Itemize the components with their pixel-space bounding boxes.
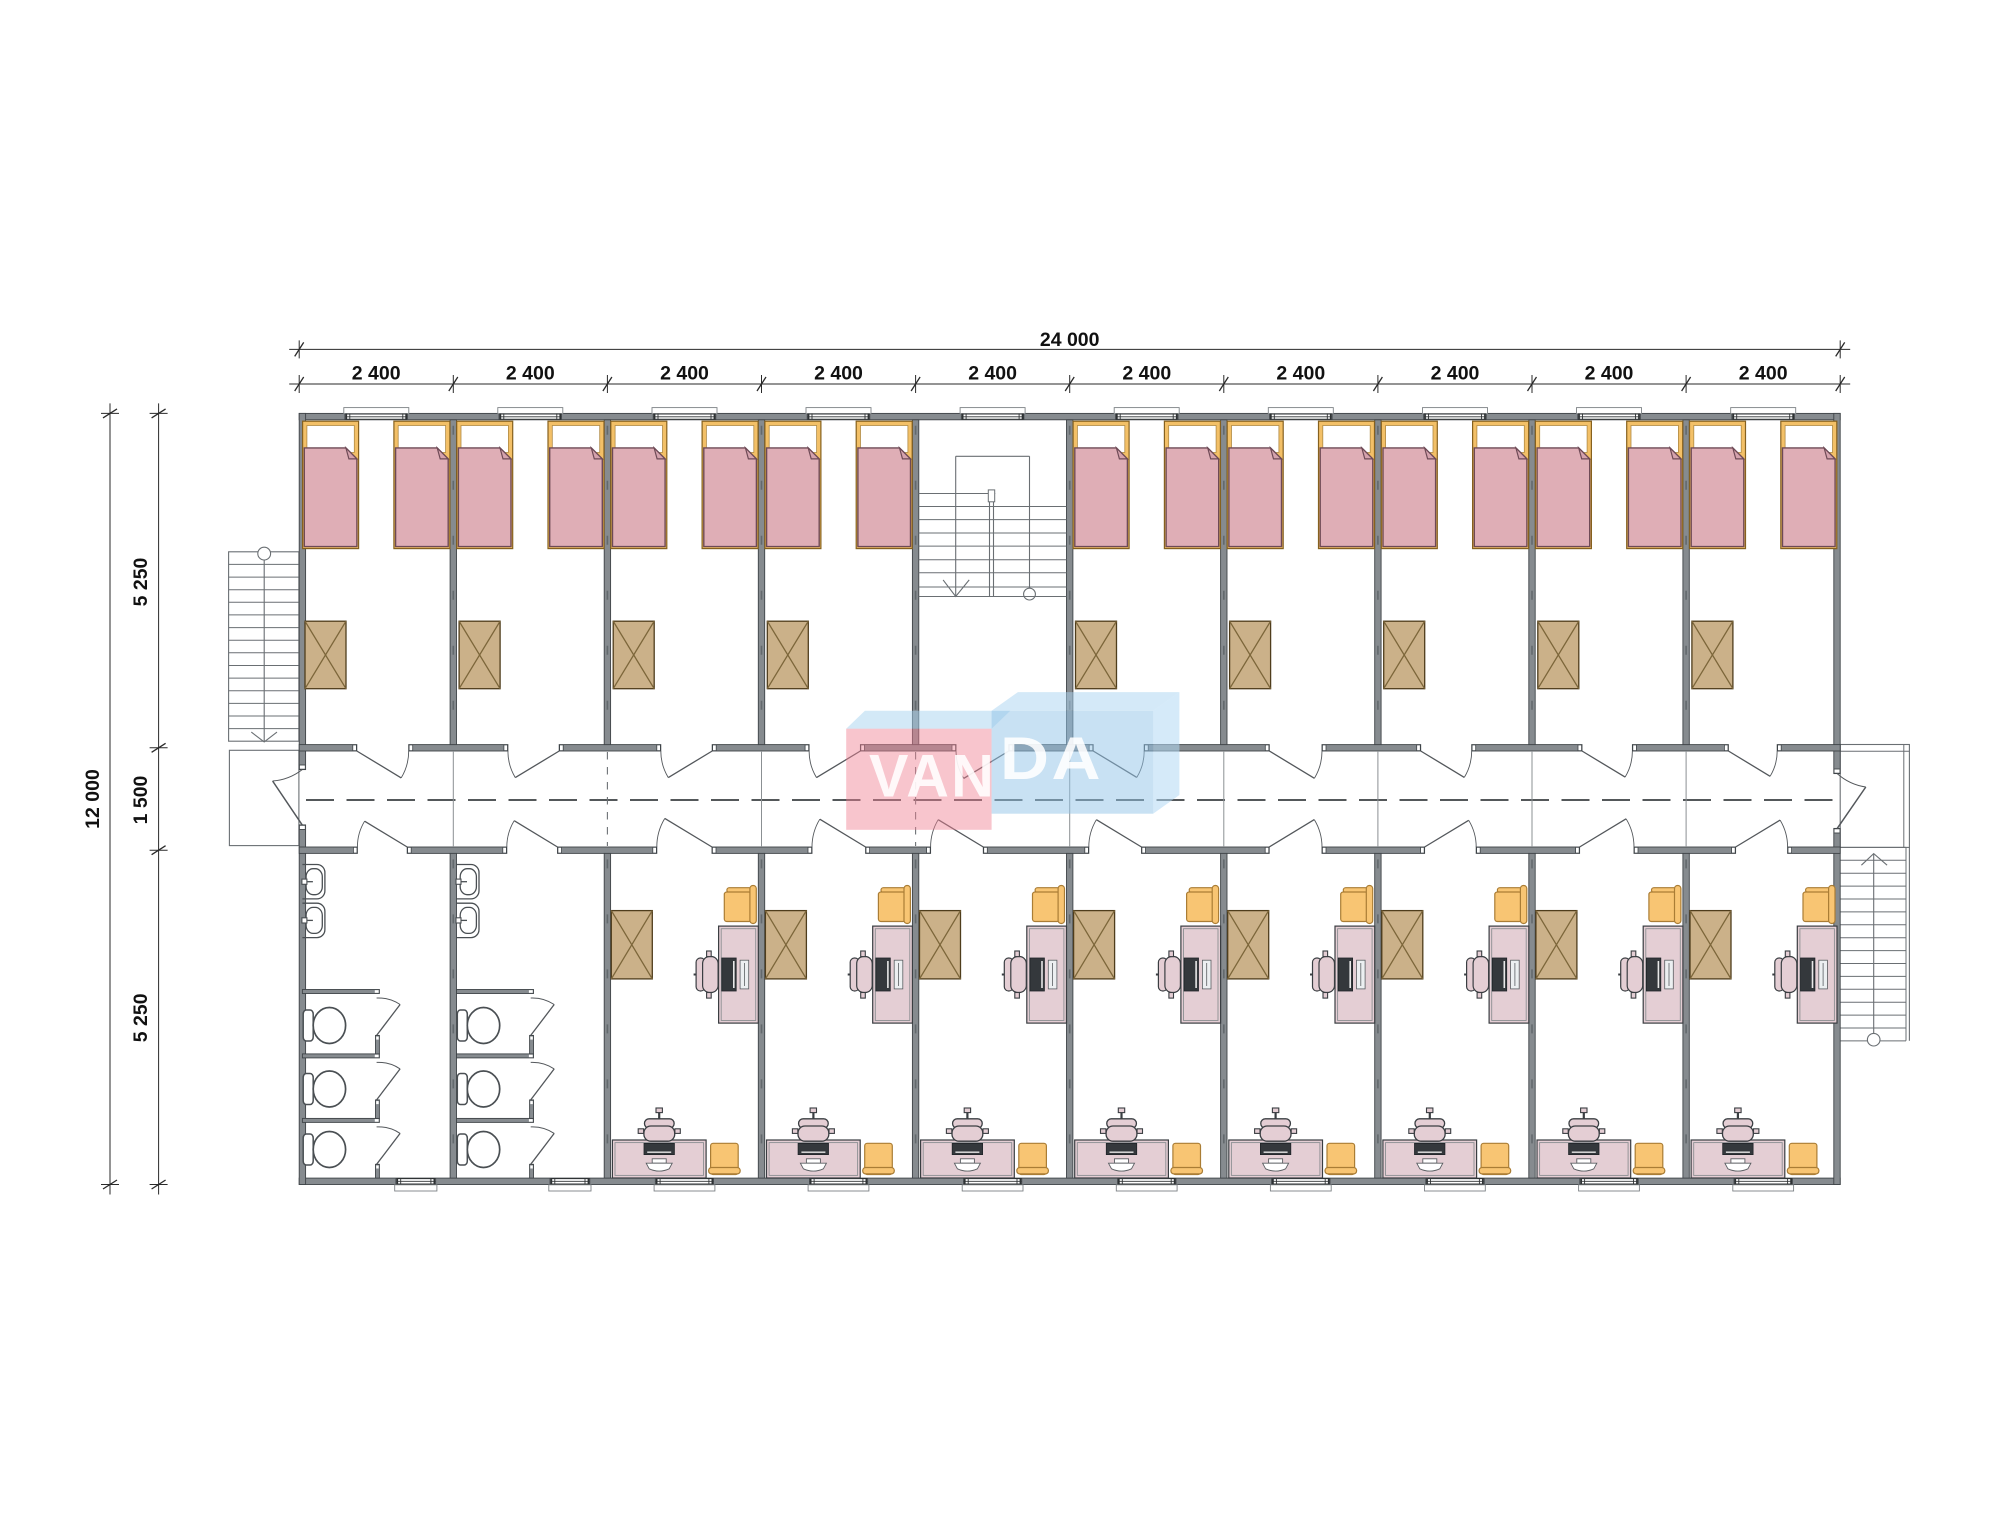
svg-text:DA: DA (1000, 725, 1103, 792)
svg-text:2 400: 2 400 (1739, 363, 1788, 385)
svg-text:2 400: 2 400 (968, 363, 1017, 385)
svg-text:2 400: 2 400 (660, 363, 709, 385)
svg-text:2 400: 2 400 (1276, 363, 1325, 385)
svg-text:2 400: 2 400 (814, 363, 863, 385)
svg-text:1 500: 1 500 (130, 775, 152, 824)
svg-text:VAN: VAN (869, 743, 996, 810)
svg-text:2 400: 2 400 (1122, 363, 1171, 385)
svg-text:2 400: 2 400 (1431, 363, 1480, 385)
svg-text:2 400: 2 400 (506, 363, 555, 385)
svg-text:24 000: 24 000 (1040, 329, 1100, 351)
svg-text:5 250: 5 250 (130, 557, 152, 606)
svg-text:2 400: 2 400 (1585, 363, 1634, 385)
svg-text:12 000: 12 000 (82, 769, 104, 829)
svg-text:5 250: 5 250 (130, 993, 152, 1042)
svg-text:2 400: 2 400 (352, 363, 401, 385)
